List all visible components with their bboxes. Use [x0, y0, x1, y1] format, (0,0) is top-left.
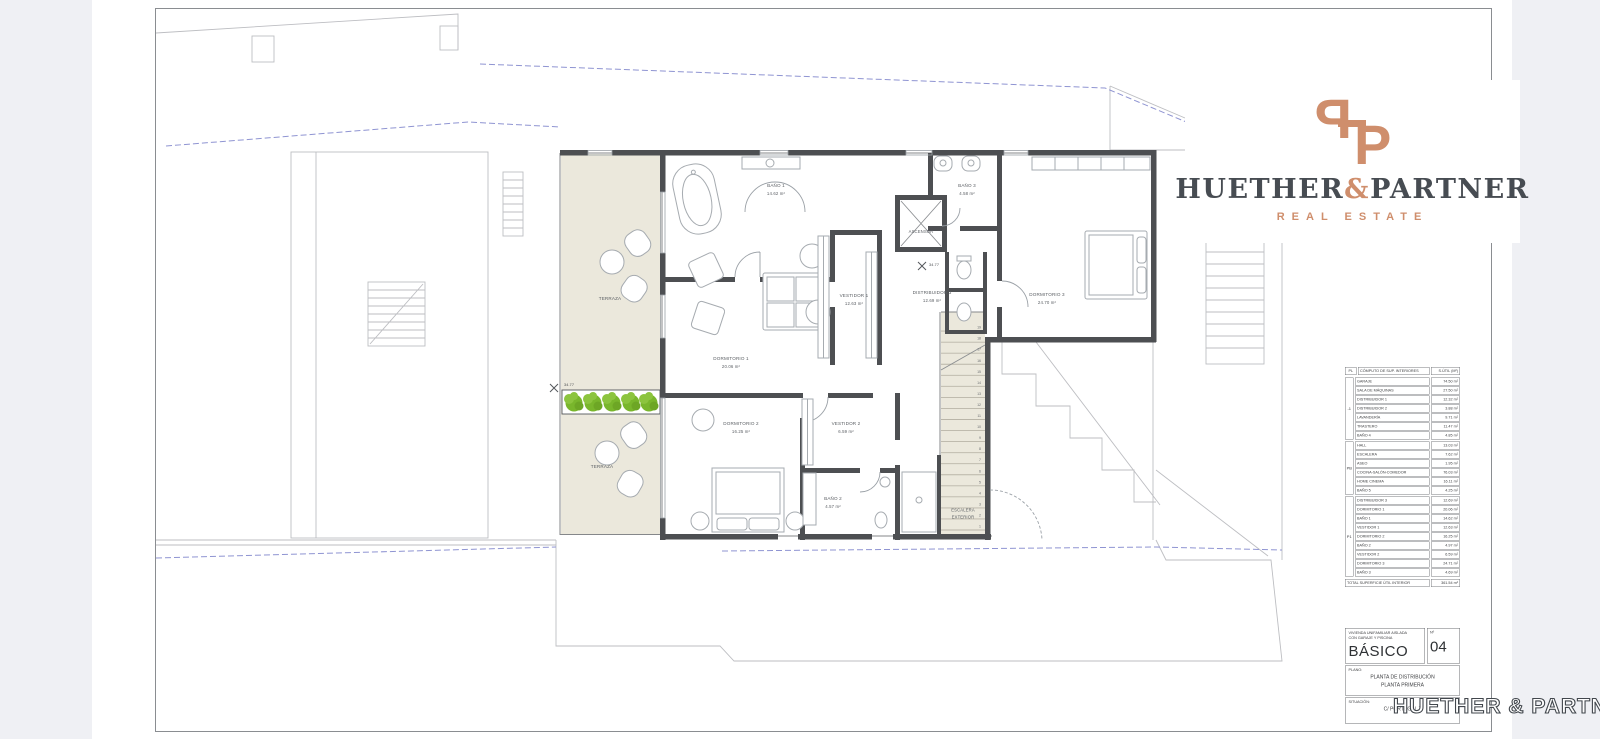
area-row: DISTRIBUIDOR 312.69 m²	[1355, 497, 1460, 505]
phase-label: BÁSICO	[1349, 643, 1422, 660]
stair-number: 14	[977, 381, 981, 385]
room-name-cell: COCINA-SALÓN-COMEDOR	[1355, 469, 1430, 477]
room-area-cell: 4.97 m²	[1431, 542, 1460, 550]
room-name-cell: DORMITORIO 3	[1355, 560, 1430, 568]
stair-number: 8	[979, 447, 981, 451]
bathtub	[669, 160, 725, 237]
room-area-dormitorio3: 24.70 m²	[1038, 300, 1057, 305]
stair-label-line2: EXTERIOR	[952, 515, 975, 520]
plano-line2: PLANTA PRIMERA	[1349, 682, 1457, 690]
area-row: SALA DE MÁQUINAS27.50 m²	[1355, 387, 1460, 395]
room-label-bano1: BAÑO 1	[767, 182, 785, 188]
room-area-cell: 14.62 m²	[1431, 515, 1460, 523]
room-area-cell: 27.50 m²	[1431, 387, 1460, 395]
room-name-cell: DISTRIBUIDOR 3	[1355, 497, 1430, 505]
area-row: DORMITORIO 324.71 m²	[1355, 560, 1460, 568]
stair-number: 7	[979, 458, 981, 462]
stair-number: 4	[979, 491, 981, 495]
furniture	[595, 156, 1150, 532]
room-area-cell: 76.03 m²	[1431, 469, 1460, 477]
room-name-cell: DISTRIBUIDOR 2	[1355, 405, 1430, 413]
header-area-cell: S.ÚTIL (M²)	[1431, 367, 1460, 375]
area-row: LAVANDERÍA9.71 m²	[1355, 414, 1460, 422]
room-name-cell: TRASTERO	[1355, 423, 1430, 431]
logo-card: P P HUETHER&PARTNER REAL ESTATE	[1185, 80, 1520, 243]
room-label-ascensor: ASCENSOR	[909, 229, 934, 234]
room-label-distribuidor3: DISTRIBUIDOR 3	[913, 290, 952, 295]
room-area-cell: 20.06 m²	[1431, 506, 1460, 514]
room-name-cell: LAVANDERÍA	[1355, 414, 1430, 422]
room-name-cell: BAÑO 1	[1355, 515, 1430, 523]
room-area-bano1: 14.62 m²	[767, 191, 786, 196]
room-label-terraza-lower: TERRAZA	[591, 464, 614, 469]
area-row: HOME CINEMA16.11 m²	[1355, 478, 1460, 486]
room-area-cell: 16.11 m²	[1431, 478, 1460, 486]
room-area-cell: 12.63 m²	[1431, 524, 1460, 532]
room-label-vestidor1: VESTIDOR 1	[840, 293, 869, 298]
area-row: GARAJE74.50 m²	[1355, 378, 1460, 386]
room-area-cell: 12.32 m²	[1431, 396, 1460, 404]
room-name-cell: VESTIDOR 2	[1355, 551, 1430, 559]
room-area-bano3: 4.58 m²	[959, 191, 975, 196]
stair-fill	[941, 312, 985, 534]
stair-number: 5	[979, 480, 981, 484]
area-row: ESCALERA7.62 m²	[1355, 451, 1460, 459]
group-floor-cell: PB	[1345, 442, 1354, 495]
brand-name-left: HUETHER	[1175, 174, 1344, 205]
brand-ampersand: &	[1344, 174, 1370, 205]
stair-number: 6	[979, 469, 981, 473]
room-area-cell: 11.47 m²	[1431, 423, 1460, 431]
room-name-cell: DORMITORIO 2	[1355, 533, 1430, 541]
monogram-right-p: P	[1354, 113, 1391, 172]
stair-number: 19	[977, 326, 981, 330]
group-floor-cell: P1	[1345, 497, 1354, 577]
brand-tagline: REAL ESTATE	[1277, 211, 1429, 223]
area-table-total: TOTAL SUPERFICIE ÚTIL INTERIOR 361.54 m²	[1345, 579, 1460, 587]
area-row: BAÑO 54.25 m²	[1355, 487, 1460, 495]
room-area-cell: 1.95 m²	[1431, 460, 1460, 468]
room-name-cell: GARAJE	[1355, 378, 1430, 386]
stair-number: 9	[979, 436, 981, 440]
stair-number: 18	[977, 337, 981, 341]
room-area-cell: 4.85 m²	[1431, 432, 1460, 440]
room-area-cell: 9.71 m²	[1431, 414, 1460, 422]
header-name-cell: CÓMPUTO DE SUP. INTERIORES	[1358, 367, 1430, 375]
monogram-left-p: P	[1314, 87, 1351, 150]
stair-number: 3	[979, 502, 981, 506]
stair-number: 17	[977, 348, 981, 352]
terrace-table	[600, 250, 624, 274]
room-area-vestidor2: 6.59 m²	[838, 429, 854, 434]
stair-number: 11	[977, 414, 981, 418]
room-area-cell: 4.25 m²	[1431, 487, 1460, 495]
area-table-group: P1DISTRIBUIDOR 312.69 m²DORMITORIO 120.0…	[1345, 497, 1460, 577]
area-row: BAÑO 114.62 m²	[1355, 515, 1460, 523]
room-area-cell: 24.71 m²	[1431, 560, 1460, 568]
level-value-planter: 34.77	[564, 383, 574, 387]
terrace-fill	[561, 154, 661, 535]
room-label-bano2: BAÑO 2	[824, 495, 842, 501]
area-row: DORMITORIO 216.25 m²	[1355, 533, 1460, 541]
room-area-distribuidor3: 12.69 m²	[923, 298, 942, 303]
plano-label: PLANO:	[1349, 667, 1457, 672]
project-line2: CON GARAJE Y PISCINA	[1349, 635, 1422, 640]
room-name-cell: BAÑO 5	[1355, 487, 1430, 495]
area-row: VESTIDOR 112.63 m²	[1355, 524, 1460, 532]
room-label-dormitorio2: DORMITORIO 2	[723, 421, 759, 426]
stair-number: 13	[977, 392, 981, 396]
area-row: DISTRIBUIDOR 112.32 m²	[1355, 396, 1460, 404]
room-name-cell: DISTRIBUIDOR 1	[1355, 396, 1430, 404]
room-area-bano2: 4.57 m²	[825, 504, 841, 509]
stair-number: 1	[979, 525, 981, 529]
room-area-cell: 7.62 m²	[1431, 451, 1460, 459]
area-table: PL CÓMPUTO DE SUP. INTERIORES S.ÚTIL (M²…	[1345, 367, 1460, 587]
area-table-group: PBHALL13.03 m²ESCALERA7.62 m²ASEO1.95 m²…	[1345, 442, 1460, 495]
room-label-bano3: BAÑO 3	[958, 182, 976, 188]
room-area-vestidor1: 12.63 m²	[845, 301, 864, 306]
area-table-groups: -1GARAJE74.50 m²SALA DE MÁQUINAS27.50 m²…	[1345, 378, 1460, 577]
room-area-cell: 12.69 m²	[1431, 497, 1460, 505]
room-name-cell: HALL	[1355, 442, 1430, 450]
room-area-cell: 4.69 m²	[1431, 569, 1460, 577]
plano-line1: PLANTA DE DISTRIBUCIÓN	[1349, 674, 1457, 682]
room-area-cell: 74.50 m²	[1431, 378, 1460, 386]
room-area-cell: 3.88 m²	[1431, 405, 1460, 413]
room-area-cell: 13.03 m²	[1431, 442, 1460, 450]
elevator-cross	[901, 201, 941, 246]
area-table-header: PL CÓMPUTO DE SUP. INTERIORES S.ÚTIL (M²…	[1345, 367, 1460, 375]
sheet-number-label: Nº	[1430, 630, 1457, 635]
area-row: HALL13.03 m²	[1355, 442, 1460, 450]
sheet-number-box: Nº 04	[1427, 628, 1460, 663]
brand-name: HUETHER&PARTNER	[1175, 174, 1529, 205]
room-area-cell: 16.25 m²	[1431, 533, 1460, 541]
watermark-text: HUETHER & PARTNER	[1393, 695, 1600, 719]
room-name-cell: ESCALERA	[1355, 451, 1430, 459]
header-floor-cell: PL	[1345, 367, 1357, 375]
area-row: BAÑO 44.85 m²	[1355, 432, 1460, 440]
area-table-group: -1GARAJE74.50 m²SALA DE MÁQUINAS27.50 m²…	[1345, 378, 1460, 440]
stair-number: 16	[977, 359, 981, 363]
room-name-cell: DORMITORIO 1	[1355, 506, 1430, 514]
area-row: DORMITORIO 120.06 m²	[1355, 506, 1460, 514]
room-name-cell: BAÑO 2	[1355, 542, 1430, 550]
room-name-cell: ASEO	[1355, 460, 1430, 468]
area-row: BAÑO 34.69 m²	[1355, 569, 1460, 577]
sheet-number: 04	[1430, 638, 1457, 655]
total-value-cell: 361.54 m²	[1431, 579, 1460, 587]
room-name-cell: VESTIDOR 1	[1355, 524, 1430, 532]
room-label-dormitorio1: DORMITORIO 1	[713, 356, 749, 361]
room-area-dormitorio1: 20.06 m²	[722, 364, 741, 369]
stair-number: 15	[977, 370, 981, 374]
stair-number: 12	[977, 403, 981, 407]
room-label-dormitorio3: DORMITORIO 3	[1029, 292, 1065, 297]
group-floor-cell: -1	[1345, 378, 1354, 440]
brand-name-right: PARTNER	[1370, 174, 1530, 205]
room-area-cell: 6.59 m²	[1431, 551, 1460, 559]
logo-monogram: P P	[1288, 80, 1418, 172]
area-row: BAÑO 24.97 m²	[1355, 542, 1460, 550]
room-name-cell: SALA DE MÁQUINAS	[1355, 387, 1430, 395]
area-row: DISTRIBUIDOR 23.88 m²	[1355, 405, 1460, 413]
room-area-dormitorio2: 16.25 m²	[732, 429, 751, 434]
area-row: ASEO1.95 m²	[1355, 460, 1460, 468]
room-name-cell: HOME CINEMA	[1355, 478, 1430, 486]
area-row: COCINA-SALÓN-COMEDOR76.03 m²	[1355, 469, 1460, 477]
stair-number: 2	[979, 513, 981, 517]
stair-label-line1: ESCALERA	[951, 508, 975, 513]
room-label-vestidor2: VESTIDOR 2	[832, 421, 861, 426]
title-block-project: VIVIENDA UNIFAMILIAR AISLADA CON GARAJE …	[1345, 628, 1425, 663]
room-label-terraza-upper: TERRAZA	[599, 296, 622, 301]
room-name-cell: BAÑO 3	[1355, 569, 1430, 577]
title-block-plano: PLANO: PLANTA DE DISTRIBUCIÓN PLANTA PRI…	[1345, 665, 1460, 695]
total-label-cell: TOTAL SUPERFICIE ÚTIL INTERIOR	[1345, 579, 1430, 587]
stair-number: 10	[977, 425, 981, 429]
room-name-cell: BAÑO 4	[1355, 432, 1430, 440]
area-row: VESTIDOR 26.59 m²	[1355, 551, 1460, 559]
level-value-distribuidor: 34.77	[929, 263, 939, 267]
terrace-table	[595, 441, 619, 465]
area-row: TRASTERO11.47 m²	[1355, 423, 1460, 431]
